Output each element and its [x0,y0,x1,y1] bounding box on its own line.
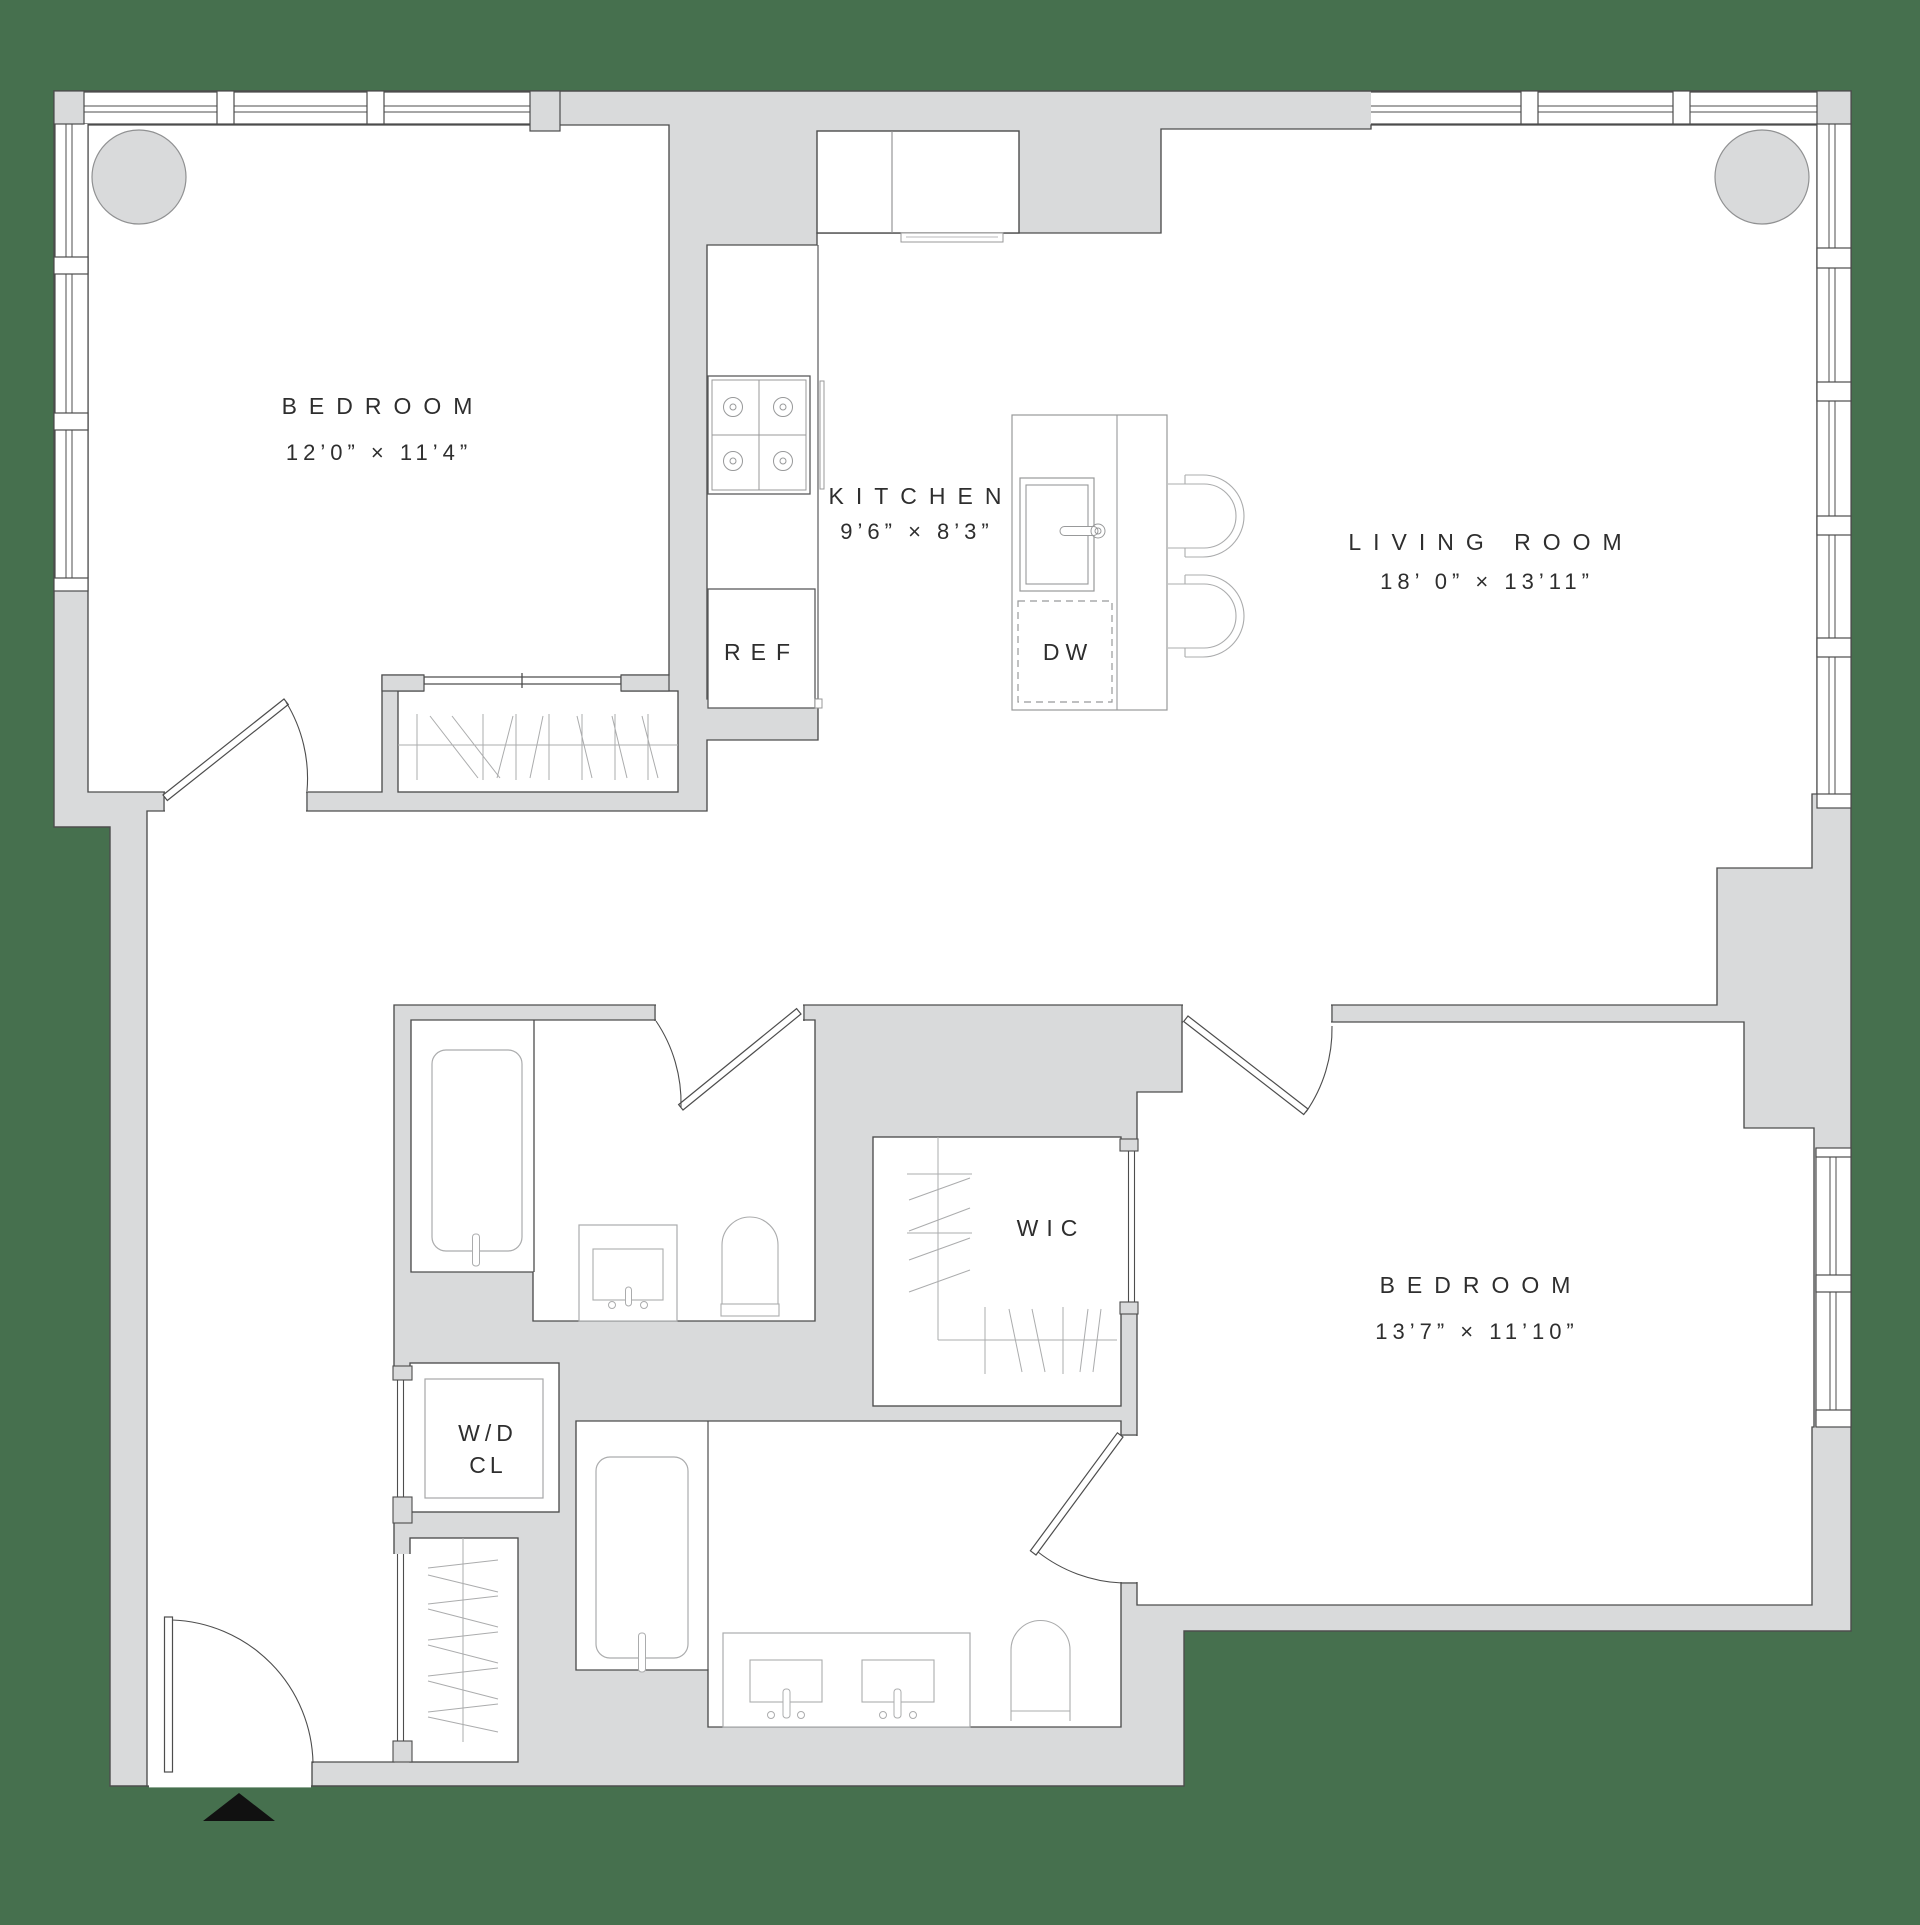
svg-text:13’7” × 11’10”: 13’7” × 11’10” [1375,1319,1579,1344]
svg-text:LIVING ROOM: LIVING ROOM [1348,529,1633,555]
svg-text:18’ 0” × 13’11”: 18’ 0” × 13’11” [1380,569,1594,594]
svg-text:W/D: W/D [458,1420,518,1446]
svg-text:BEDROOM: BEDROOM [282,393,485,419]
svg-text:12’0” × 11’4”: 12’0” × 11’4” [286,440,472,465]
svg-text:DW: DW [1043,639,1093,665]
svg-text:BEDROOM: BEDROOM [1380,1272,1583,1298]
svg-text:KITCHEN: KITCHEN [829,483,1014,509]
svg-text:WIC: WIC [1017,1215,1086,1241]
svg-text:REF: REF [724,639,800,665]
svg-text:CL: CL [469,1452,506,1478]
svg-text:9’6” × 8’3”: 9’6” × 8’3” [840,519,993,544]
